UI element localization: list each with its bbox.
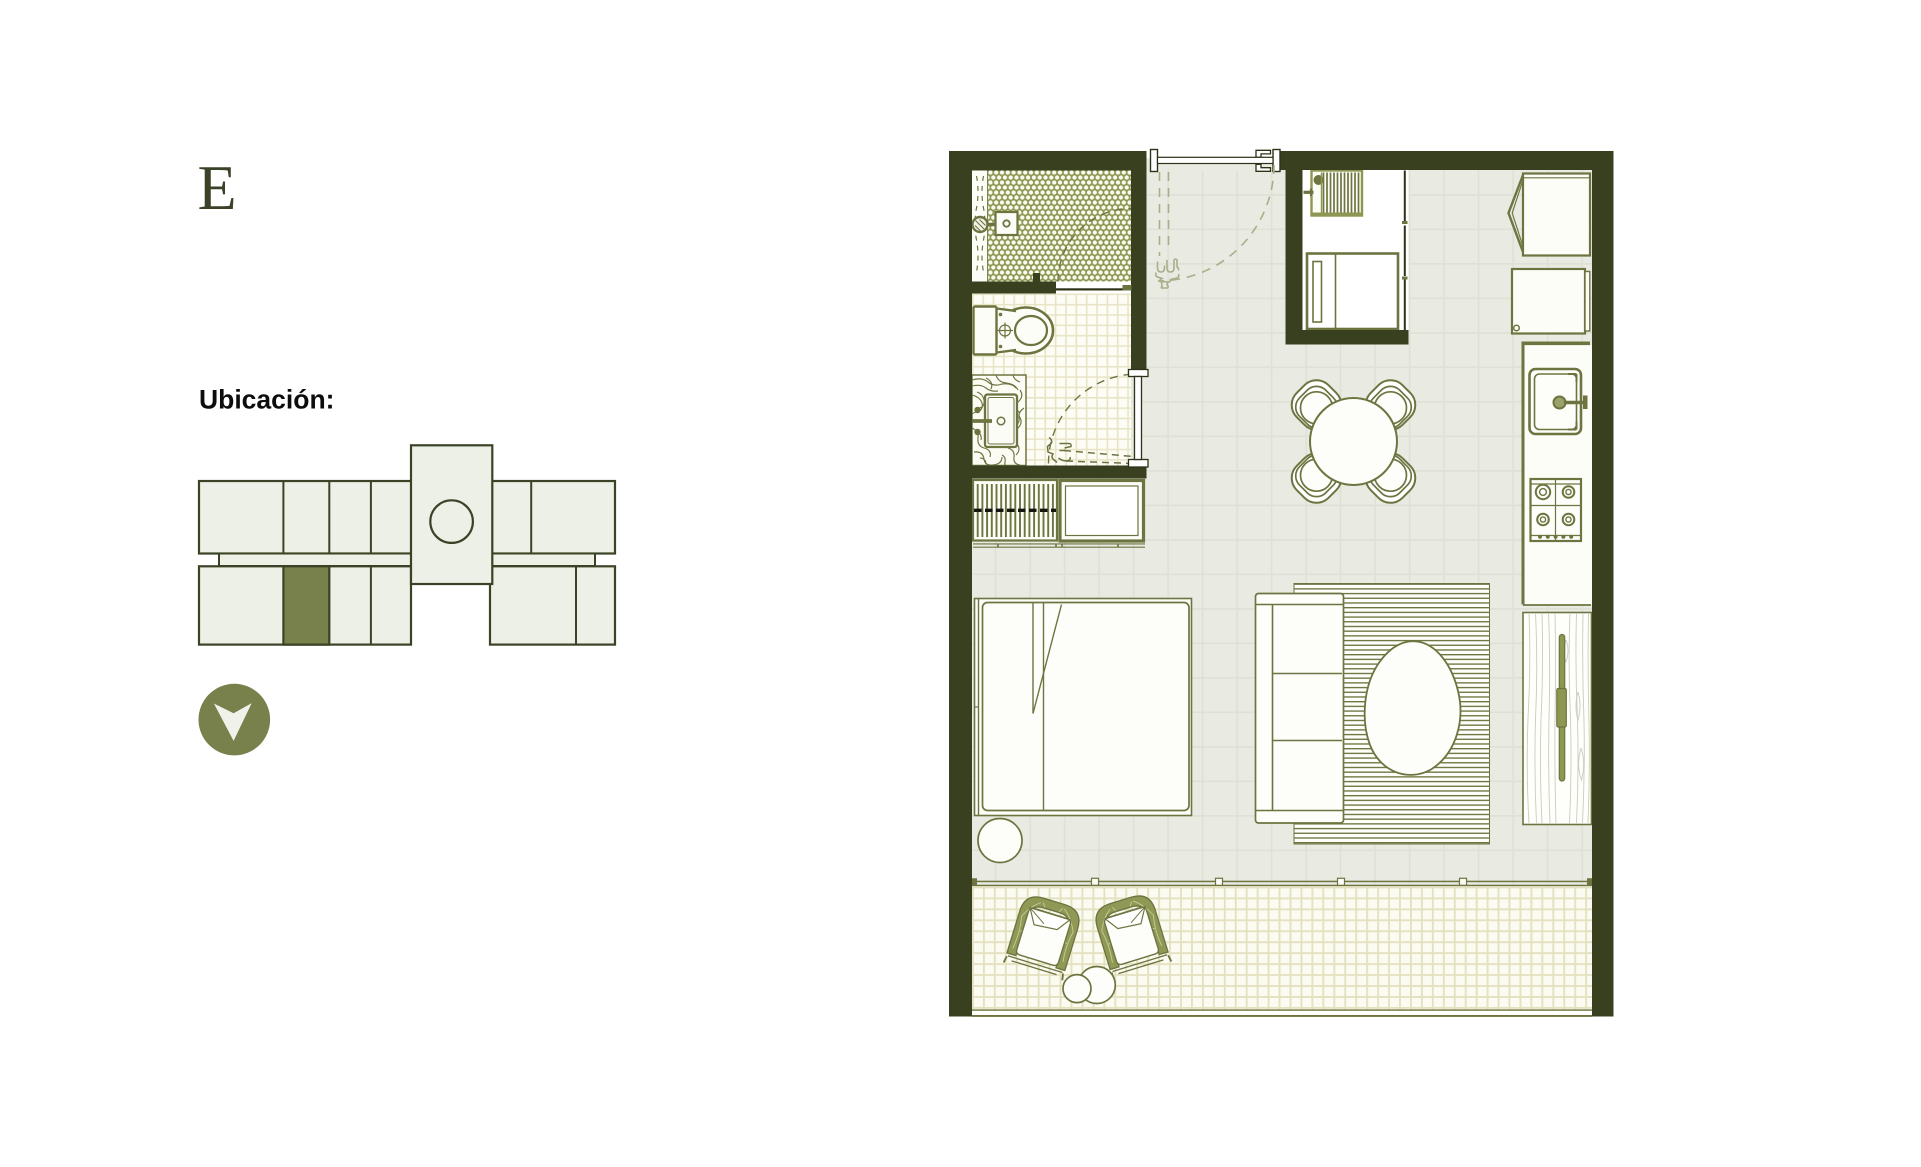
svg-text:Ubicación:: Ubicación: bbox=[199, 385, 334, 415]
svg-text:E: E bbox=[198, 152, 237, 223]
